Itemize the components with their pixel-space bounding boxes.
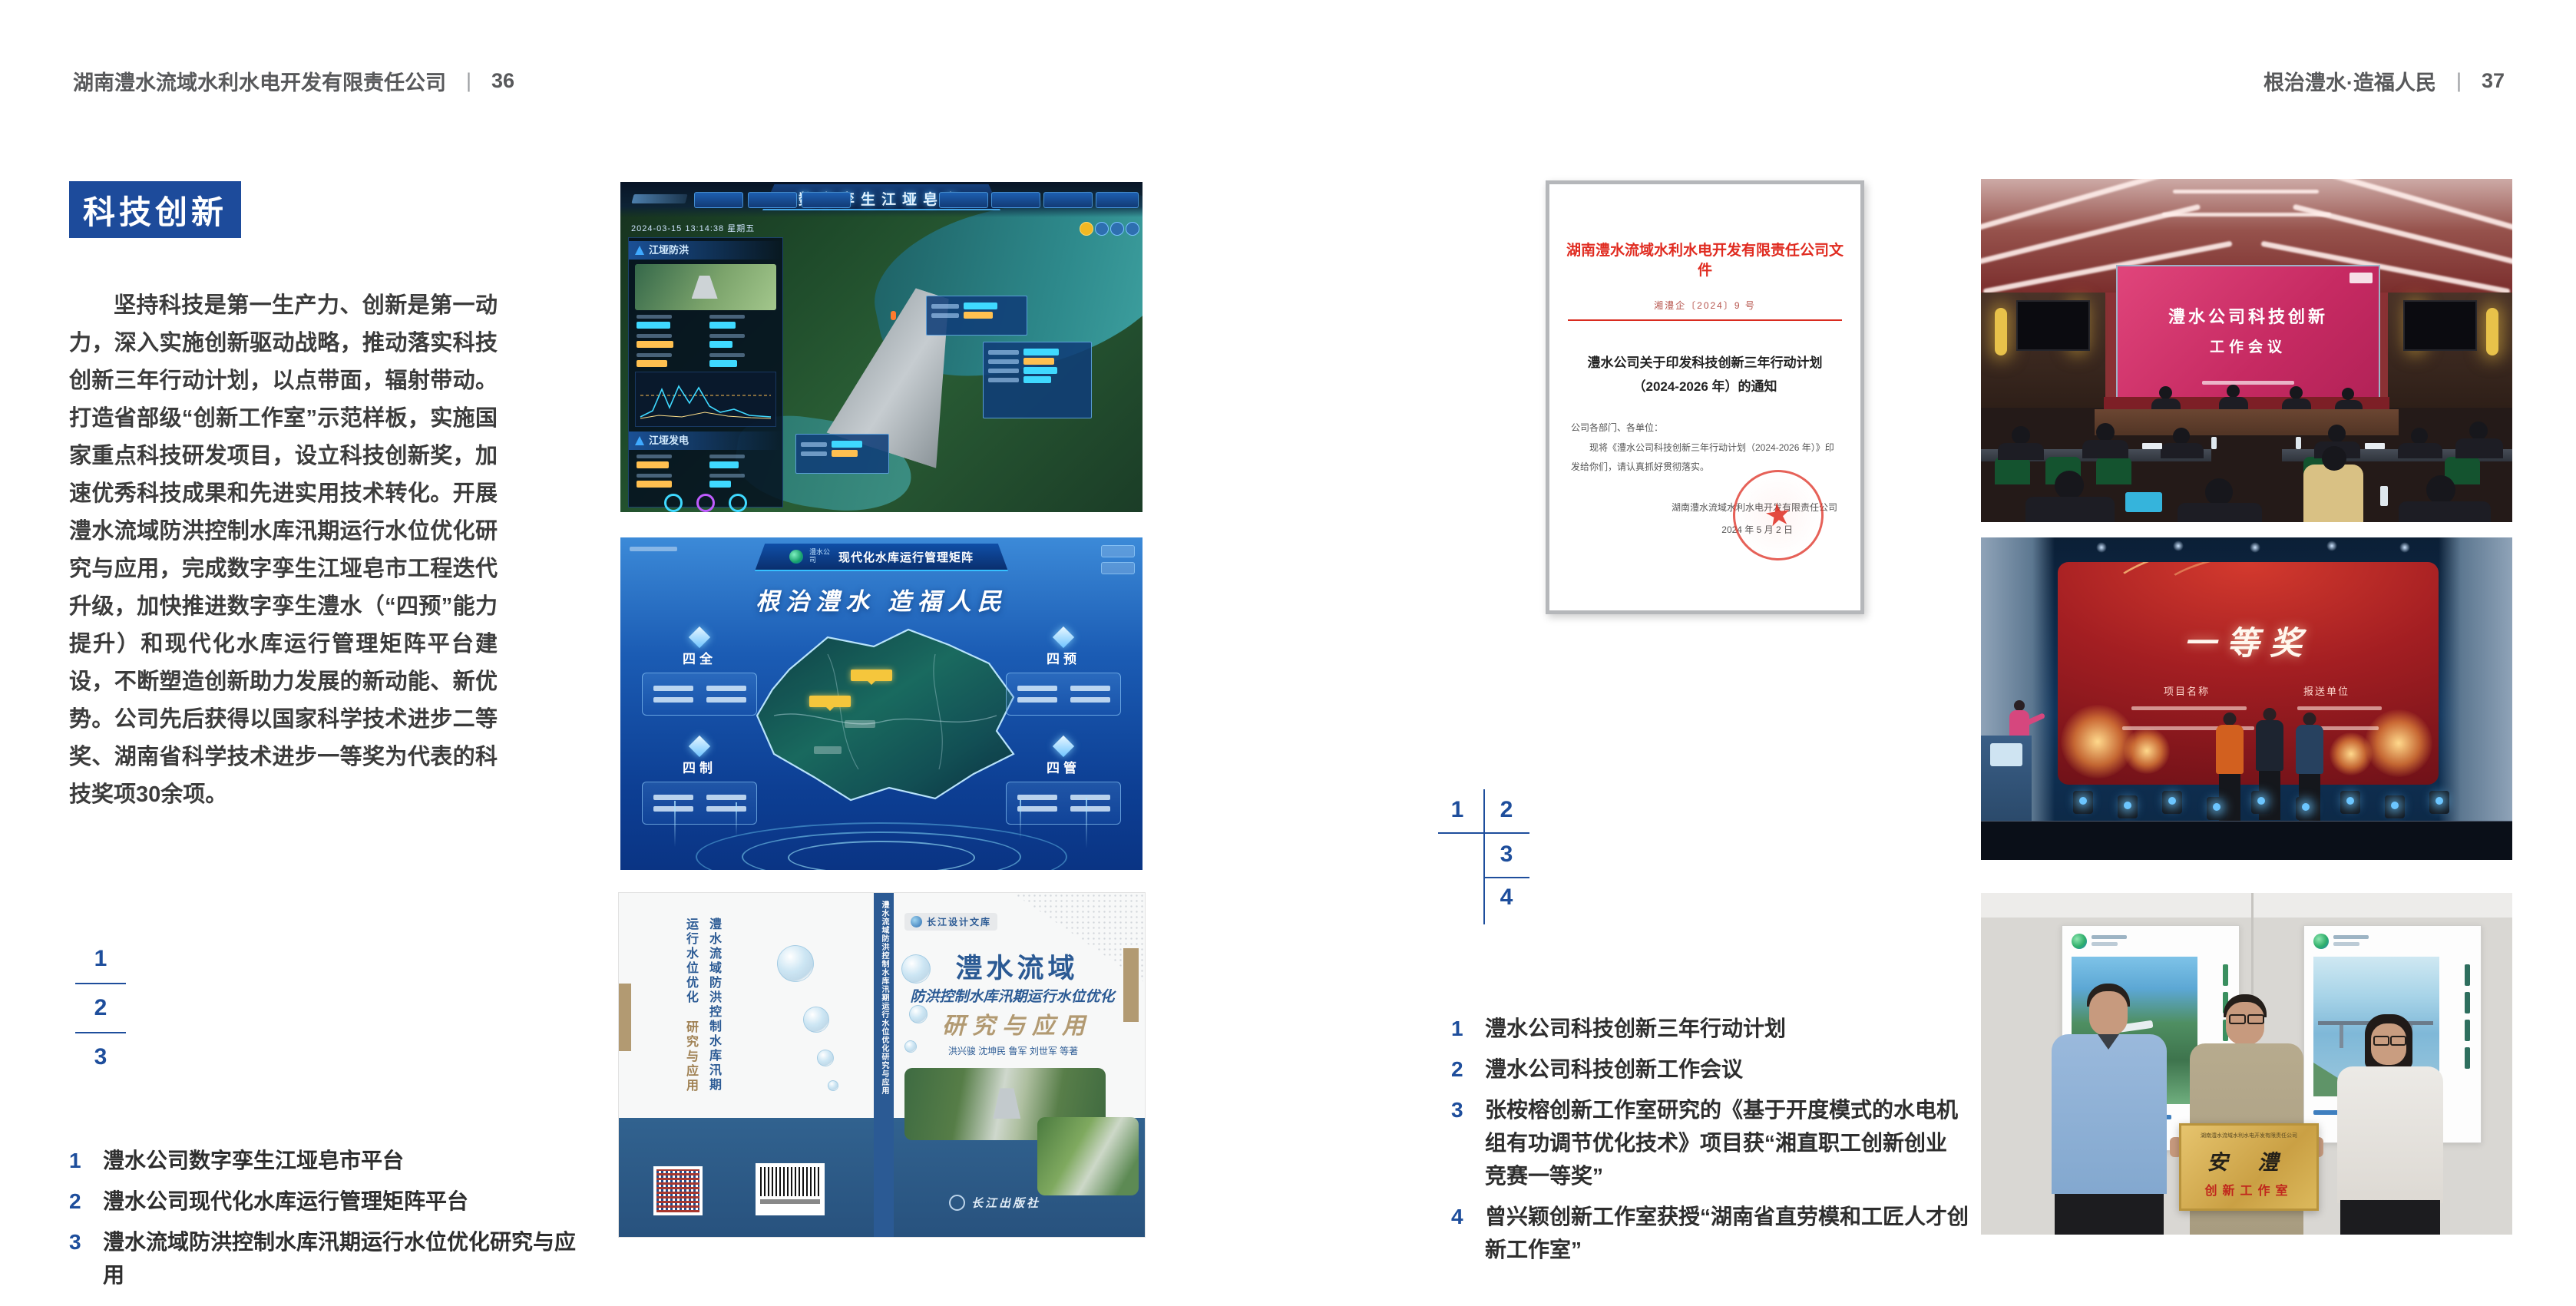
calligraphy-stroke — [2223, 964, 2228, 986]
layers-icon — [1095, 222, 1109, 236]
column-label-unit: 报送单位 — [2303, 683, 2349, 698]
barcode-number — [760, 1199, 820, 1204]
glasses — [2373, 1036, 2389, 1046]
stage-light — [2162, 791, 2182, 814]
foreground-body — [2025, 497, 2115, 522]
site-label-tag — [851, 670, 892, 681]
figure-plaque-photo: 湖南澧水流域水利水电开发有限责任公司 安 澧 创新工作室 — [1981, 893, 2512, 1235]
trousers — [2055, 1194, 2164, 1235]
light-pillar — [1086, 798, 1087, 848]
speaker-head — [2342, 388, 2354, 400]
conference-screen: 澧水公司科技创新 工作会议 — [2116, 265, 2380, 400]
tab-pill — [1096, 192, 1139, 208]
audience-head — [2012, 426, 2030, 445]
trousers — [2340, 1200, 2440, 1235]
stage-light — [2429, 791, 2449, 814]
index-grid-hline — [1483, 877, 1529, 878]
matrix-header: 澧水公司 现代化水库运行管理矩阵 — [755, 544, 1008, 571]
screen-subtext — [2202, 381, 2294, 385]
stage-light — [2340, 791, 2360, 814]
unit-gauges — [629, 494, 782, 512]
qr-code — [653, 1166, 703, 1215]
book-title-main: 澧水流域 — [918, 947, 1116, 986]
locate-icon — [1110, 222, 1124, 236]
tab-pill — [991, 192, 1040, 208]
water-bottle — [2211, 437, 2217, 449]
gauge — [729, 494, 747, 512]
water-bottle — [2380, 486, 2388, 506]
stat-cell — [709, 334, 775, 348]
title-line-1: 澧水公司关于印发科技创新三年行动计划 — [1549, 352, 1860, 375]
publisher-block: 长江出版社 — [949, 1195, 1040, 1211]
back-cover-title: 澧水流域防洪控制水库汛期运行水位优化 研究与应用 — [679, 918, 725, 1100]
paper — [2365, 443, 2385, 449]
foreground-body — [2178, 503, 2262, 522]
light-pillar — [736, 802, 737, 836]
light-strip — [2173, 190, 2319, 193]
figure-number: 1 — [1442, 797, 1473, 823]
truss-light — [2399, 542, 2410, 553]
caption-text: 澧水公司科技创新三年行动计划 — [1485, 1012, 1786, 1045]
page-number-right: 37 — [2482, 69, 2505, 93]
light-pillar — [674, 801, 676, 847]
back-title-tail: 研究与应用 — [684, 1020, 697, 1093]
logo-text: 澧水公司 — [809, 549, 832, 564]
light-strip — [2162, 213, 2331, 217]
series-logo-icon — [911, 916, 922, 927]
figure-meeting-photo: 澧水公司科技创新 工作会议 — [1981, 179, 2512, 522]
site-label-tag — [809, 696, 851, 707]
water-droplet — [817, 1050, 834, 1066]
light-pillar — [1020, 799, 1021, 839]
person-head — [2303, 713, 2316, 726]
caption-item: 1 澧水公司数字孪生江垭皂市平台 — [69, 1144, 576, 1177]
stat-cell — [637, 474, 702, 488]
column-label-project: 项目名称 — [2164, 683, 2210, 698]
flood-stats — [637, 315, 775, 367]
speaker-body — [2219, 397, 2248, 409]
stage-light — [2385, 795, 2405, 818]
truss-light — [2096, 542, 2107, 553]
plaque-name: 安 澧 — [2181, 1146, 2316, 1175]
caption-text: 澧水公司数字孪生江垭皂市平台 — [103, 1144, 404, 1177]
caption-text: 张桉榕创新工作室研究的《基于开度模式的水电机组有功调节优化技术》项目获“湘直职工… — [1485, 1093, 1958, 1192]
calligraphy-stroke — [2465, 964, 2470, 986]
caption-item: 1 澧水公司科技创新三年行动计划 — [1451, 1012, 1981, 1045]
audience-head — [2469, 422, 2488, 440]
tab-pill — [939, 192, 988, 208]
poster-logo-text — [2092, 935, 2127, 939]
plaque-org-line: 湖南澧水流域水利水电开发有限责任公司 — [2181, 1132, 2316, 1139]
spread-slogan: 根治澧水·造福人民 — [2264, 66, 2436, 96]
front-accent-bar — [1123, 948, 1139, 1022]
speaker-head — [2159, 386, 2172, 399]
wall-tv-screen — [2403, 300, 2477, 351]
stat-cell — [637, 353, 702, 367]
caption-item: 4 曾兴颖创新工作室获授“湖南省直劳模和工匠人才创新工作室” — [1451, 1200, 1981, 1266]
figure-number: 2 — [75, 995, 126, 1021]
basin-map — [743, 623, 1035, 808]
flood-panel-title: 江垭防洪 — [629, 241, 782, 260]
stat-cell — [637, 315, 702, 329]
dam-in-photo — [993, 1088, 1020, 1119]
stat-cell — [637, 455, 702, 468]
stage-right-panel — [2439, 537, 2512, 860]
matrix-title: 现代化水库运行管理矩阵 — [838, 549, 974, 565]
stat-cell — [709, 353, 775, 367]
chart-svg — [636, 372, 775, 425]
tab-pill — [694, 192, 743, 208]
tissue-box — [2125, 492, 2162, 512]
quadrant-siquan: 四全 — [642, 630, 757, 716]
person-body — [2296, 725, 2323, 774]
foreground-head — [2055, 471, 2084, 500]
figure-index-left: 1 2 3 — [75, 946, 126, 1070]
podium-panel — [1990, 743, 2022, 766]
publisher-name: 长江出版社 — [971, 1195, 1040, 1211]
right-page-header: 根治澧水·造福人民 | 37 — [2264, 66, 2505, 96]
figure-digital-twin-platform: 数字孪生江垭皂市 2024-03-15 13:14:38 星期五 江垭防洪 — [620, 182, 1143, 512]
stat-cell — [637, 334, 702, 348]
glasses — [2229, 1014, 2246, 1024]
ripple-ring — [788, 841, 975, 870]
title-line-2: （2024-2026 年）的通知 — [1549, 375, 1860, 399]
bridge-pier — [2340, 1025, 2343, 1048]
company-name: 湖南澧水流域水利水电开发有限责任公司 — [73, 66, 446, 96]
truss-light — [2173, 541, 2184, 551]
tab-pill — [1043, 192, 1093, 208]
stage-light — [2251, 791, 2271, 814]
project-line — [2131, 706, 2247, 710]
figure-number: 1 — [75, 946, 126, 972]
dashboard-topbar: 数字孪生江垭皂市 — [620, 182, 1143, 217]
brochure-spread: 湖南澧水流域水利水电开发有限责任公司 | 36 根治澧水·造福人民 | 37 科… — [0, 0, 2576, 1306]
barcode — [756, 1163, 825, 1215]
screen-title-line1: 澧水公司科技创新 — [2118, 303, 2379, 328]
tab-pill — [802, 192, 851, 208]
document-title: 澧水公司关于印发科技创新三年行动计划 （2024-2026 年）的通知 — [1549, 352, 1860, 398]
document-body: 公司各部门、各单位： 现将《澧水公司科技创新三年行动计划（2024-2026 年… — [1571, 418, 1839, 477]
stat-cell — [709, 474, 775, 488]
caption-number: 3 — [69, 1225, 88, 1291]
page-number-left: 36 — [491, 69, 514, 93]
golden-orb — [2365, 709, 2432, 777]
document-red-header: 湖南澧水流域水利水电开发有限责任公司文件 — [1566, 241, 1844, 280]
audience-body — [2082, 440, 2128, 458]
site-label-small — [814, 746, 842, 754]
index-divider — [75, 983, 126, 984]
person-head — [2014, 700, 2025, 711]
poster-logo-icon — [2072, 934, 2087, 949]
foreground-head — [2426, 475, 2455, 504]
woman-yellow-cardigan — [2303, 465, 2363, 522]
caption-item: 2 澧水公司科技创新工作会议 — [1451, 1053, 1981, 1086]
barcode-stripes — [760, 1167, 820, 1196]
audience-head — [2096, 423, 2115, 441]
water-droplet — [828, 1080, 838, 1091]
glasses — [2390, 1036, 2406, 1046]
datetime-placeholder — [630, 547, 677, 551]
series-tag: 长江设计文库 — [904, 913, 997, 931]
body-paragraph: 现将《澧水公司科技创新三年行动计划（2024-2026 年）》印发给你们，请认真… — [1571, 438, 1839, 477]
face — [2089, 991, 2128, 1036]
wall-top-strip — [1981, 893, 2512, 918]
header-button — [1101, 562, 1135, 574]
polo-shirt — [2052, 1034, 2167, 1194]
caption-number: 2 — [69, 1185, 88, 1218]
speaker-head — [2290, 386, 2303, 399]
official-seal: ★ — [1727, 464, 1829, 566]
cube-icon — [1053, 627, 1074, 648]
chair — [2096, 457, 2131, 484]
wall-tv-screen — [2016, 300, 2090, 351]
left-data-panel: 江垭防洪 江垭发电 — [628, 237, 783, 508]
quadrant-sizhi: 四制 — [642, 739, 757, 825]
section-title-badge: 科技创新 — [69, 181, 241, 238]
figure-matrix-platform: 澧水公司 现代化水库运行管理矩阵 根治澧水 造福人民 四全 — [620, 537, 1143, 870]
golden-orb — [2124, 728, 2170, 774]
audience-body — [1998, 443, 2044, 460]
shield-icon — [1053, 736, 1074, 757]
quadrant-items — [1006, 673, 1121, 716]
header-button — [1101, 545, 1135, 557]
screen-logo — [2349, 273, 2373, 283]
back-accent-bar — [619, 984, 631, 1051]
red-rule — [1568, 319, 1842, 321]
figure-award-photo: 一等奖 项目名称 报送单位 — [1981, 537, 2512, 860]
foreground-head — [2322, 446, 2346, 471]
figure-number: 2 — [1491, 797, 1522, 823]
book-title-tail: 研究与应用 — [918, 1007, 1116, 1040]
person-head — [2264, 708, 2277, 721]
quadrant-items — [642, 782, 757, 825]
worker-marker — [891, 311, 896, 320]
golden-orb — [2330, 732, 2373, 775]
audience-head — [2411, 428, 2428, 445]
poster-logo-icon — [2313, 934, 2329, 949]
series-name: 长江设计文库 — [927, 915, 991, 928]
tab-pill — [748, 192, 797, 208]
stage-light — [2073, 791, 2093, 814]
caption-number: 2 — [1451, 1053, 1470, 1086]
stat-cell — [709, 455, 775, 468]
power-stats — [637, 455, 775, 488]
person-body — [2256, 720, 2283, 771]
stage-light — [2296, 797, 2316, 820]
gauge — [664, 494, 683, 512]
person-head — [2224, 713, 2237, 726]
book-title-sub: 防洪控制水库汛期运行水位优化 — [901, 985, 1123, 1006]
matrix-slogan: 根治澧水 造福人民 — [620, 582, 1143, 617]
quadrant-title: 四管 — [1006, 757, 1121, 776]
figure-number: 3 — [75, 1044, 126, 1070]
speaker-head — [2227, 385, 2240, 398]
truss-light — [2326, 541, 2337, 551]
left-captions: 1 澧水公司数字孪生江垭皂市平台 2 澧水公司现代化水库运行管理矩阵平台 3 澧… — [69, 1144, 576, 1299]
foreground-body — [2399, 501, 2491, 522]
head-table — [2095, 409, 2399, 435]
audience-head — [2173, 428, 2190, 445]
spine-title: 澧水流域防洪控制水库汛期运行水位优化研究与应用 — [874, 901, 894, 1154]
innovation-studio-plaque: 湖南澧水流域水利水电开发有限责任公司 安 澧 创新工作室 — [2179, 1123, 2319, 1211]
figure-book-cover: 澧水流域防洪控制水库汛期运行水位优化 研究与应用 澧水流域防洪控制水库汛期运行水… — [618, 892, 1146, 1238]
header-separator: | — [2456, 69, 2462, 93]
audience-body — [2398, 443, 2442, 458]
caption-text: 澧水公司现代化水库运行管理矩阵平台 — [103, 1185, 468, 1218]
gauge — [696, 494, 715, 512]
map-info-box — [795, 434, 889, 474]
t-shirt — [2337, 1066, 2443, 1203]
caption-item: 3 澧水流域防洪控制水库汛期运行水位优化研究与应用 — [69, 1225, 576, 1291]
caption-text: 曾兴颖创新工作室获授“湖南省直劳模和工匠人才创新工作室” — [1485, 1200, 1981, 1266]
caption-item: 3 张桉榕创新工作室研究的《基于开度模式的水电机组有功调节优化技术》项目获“湘直… — [1451, 1093, 1958, 1192]
reflective-floor — [1981, 821, 2512, 860]
poster-logo-text — [2333, 942, 2359, 946]
building-icon — [689, 736, 710, 757]
company-logo-icon — [789, 550, 803, 564]
calligraphy-stroke — [2465, 1020, 2470, 1041]
map-info-box — [926, 296, 1027, 336]
header-separator: | — [466, 69, 471, 93]
index-grid-vline — [1483, 789, 1485, 924]
mode-label — [631, 194, 687, 203]
caption-item: 2 澧水公司现代化水库运行管理矩阵平台 — [69, 1185, 576, 1218]
power-panel-title: 江垭发电 — [629, 431, 782, 450]
figure-official-document: 湖南澧水流域水利水电开发有限责任公司文件 湘澧企〔2024〕9 号 澧水公司关于… — [1546, 180, 1864, 614]
right-captions: 1 澧水公司科技创新三年行动计划 2 澧水公司科技创新工作会议 3 张桉榕创新工… — [1451, 1012, 1981, 1274]
water-droplet — [803, 1007, 829, 1033]
map-info-box — [983, 342, 1092, 418]
document-number: 湘澧企〔2024〕9 号 — [1549, 299, 1860, 312]
water-droplet — [777, 945, 814, 982]
quadrant-title: 四全 — [642, 648, 757, 667]
dam-camera-thumbnail — [635, 264, 776, 310]
index-grid-hline — [1438, 832, 1529, 834]
figure-number: 4 — [1491, 884, 1522, 911]
glasses — [2247, 1014, 2264, 1024]
led-screen: 一等奖 项目名称 报送单位 — [2058, 562, 2439, 785]
quadrant-items — [642, 673, 757, 716]
audience-body — [2161, 443, 2204, 458]
wall-lamp — [1995, 308, 2007, 355]
quadrant-title: 四制 — [642, 757, 757, 776]
caption-text: 澧水流域防洪控制水库汛期运行水位优化研究与应用 — [103, 1225, 576, 1291]
unit-line — [2297, 706, 2382, 710]
paper — [2142, 443, 2162, 449]
golden-orb — [2061, 705, 2135, 779]
user-icon — [1126, 222, 1139, 236]
quadrant-title: 四预 — [1006, 648, 1121, 667]
calligraphy-stroke — [2465, 1047, 2470, 1069]
figure-number: 3 — [1491, 841, 1522, 868]
award-headline: 一等奖 — [2058, 617, 2439, 664]
qr-pattern — [656, 1169, 699, 1212]
calligraphy-stroke — [2465, 992, 2470, 1013]
foreground-head — [2205, 478, 2233, 506]
section-paragraph: 坚持科技是第一生产力、创新是第一动力，深入实施创新驱动战略，推动落实科技创新三年… — [69, 287, 498, 814]
caption-number: 1 — [69, 1144, 88, 1177]
site-label-small — [845, 720, 875, 728]
chair — [1995, 457, 2030, 484]
truss-light — [2250, 542, 2260, 553]
caption-text: 澧水公司科技创新工作会议 — [1485, 1053, 1743, 1086]
book-authors: 洪兴骏 沈坤民 鲁军 刘世军 等著 — [911, 1044, 1116, 1057]
left-page-header: 湖南澧水流域水利水电开发有限责任公司 | 36 — [73, 66, 514, 96]
index-divider — [75, 1032, 126, 1033]
stat-cell — [709, 315, 775, 329]
quadrant-items — [1006, 782, 1121, 825]
seal-star-icon: ★ — [1762, 496, 1794, 535]
caption-number: 4 — [1451, 1200, 1470, 1266]
stage-light — [2118, 795, 2138, 818]
wall-lamp — [2486, 308, 2498, 355]
publisher-logo-icon — [949, 1195, 965, 1211]
dashboard-datetime: 2024-03-15 13:14:38 星期五 — [631, 222, 755, 234]
quadrant-siyu: 四预 — [1006, 630, 1121, 716]
poster-logo-text — [2092, 942, 2118, 946]
poster-logo-text — [2333, 935, 2369, 939]
dam-photo-band — [1037, 1117, 1139, 1195]
quadrant-siguan: 四管 — [1006, 739, 1121, 825]
person-body — [2216, 725, 2244, 774]
salutation: 公司各部门、各单位： — [1571, 418, 1839, 438]
alert-icon — [1080, 222, 1093, 236]
book-spine: 澧水流域防洪控制水库汛期运行水位优化研究与应用 — [874, 893, 894, 1237]
stage-light — [2207, 797, 2227, 820]
plaque-subtitle: 创新工作室 — [2181, 1180, 2316, 1199]
caption-number: 1 — [1451, 1012, 1470, 1045]
water-level-chart — [635, 372, 776, 427]
cube-icon — [689, 627, 710, 648]
caption-number: 3 — [1451, 1093, 1470, 1192]
water-bottle — [2296, 437, 2301, 449]
audience-head — [2328, 425, 2346, 442]
screen-title-line2: 工作会议 — [2118, 336, 2379, 356]
audience-body — [2455, 438, 2503, 458]
